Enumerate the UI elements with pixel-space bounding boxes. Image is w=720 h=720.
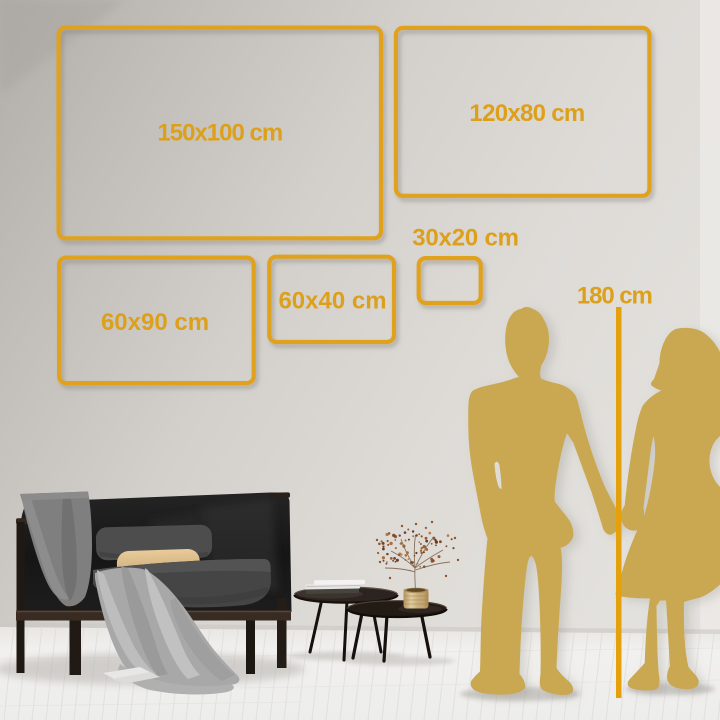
svg-text:150x100 cm: 150x100 cm (157, 120, 282, 147)
svg-text:60x90 cm: 60x90 cm (101, 309, 209, 336)
svg-text:180 cm: 180 cm (577, 282, 652, 309)
svg-text:60x40 cm: 60x40 cm (278, 287, 386, 314)
svg-text:120x80 cm: 120x80 cm (469, 100, 584, 127)
svg-text:30x20 cm: 30x20 cm (412, 225, 519, 252)
